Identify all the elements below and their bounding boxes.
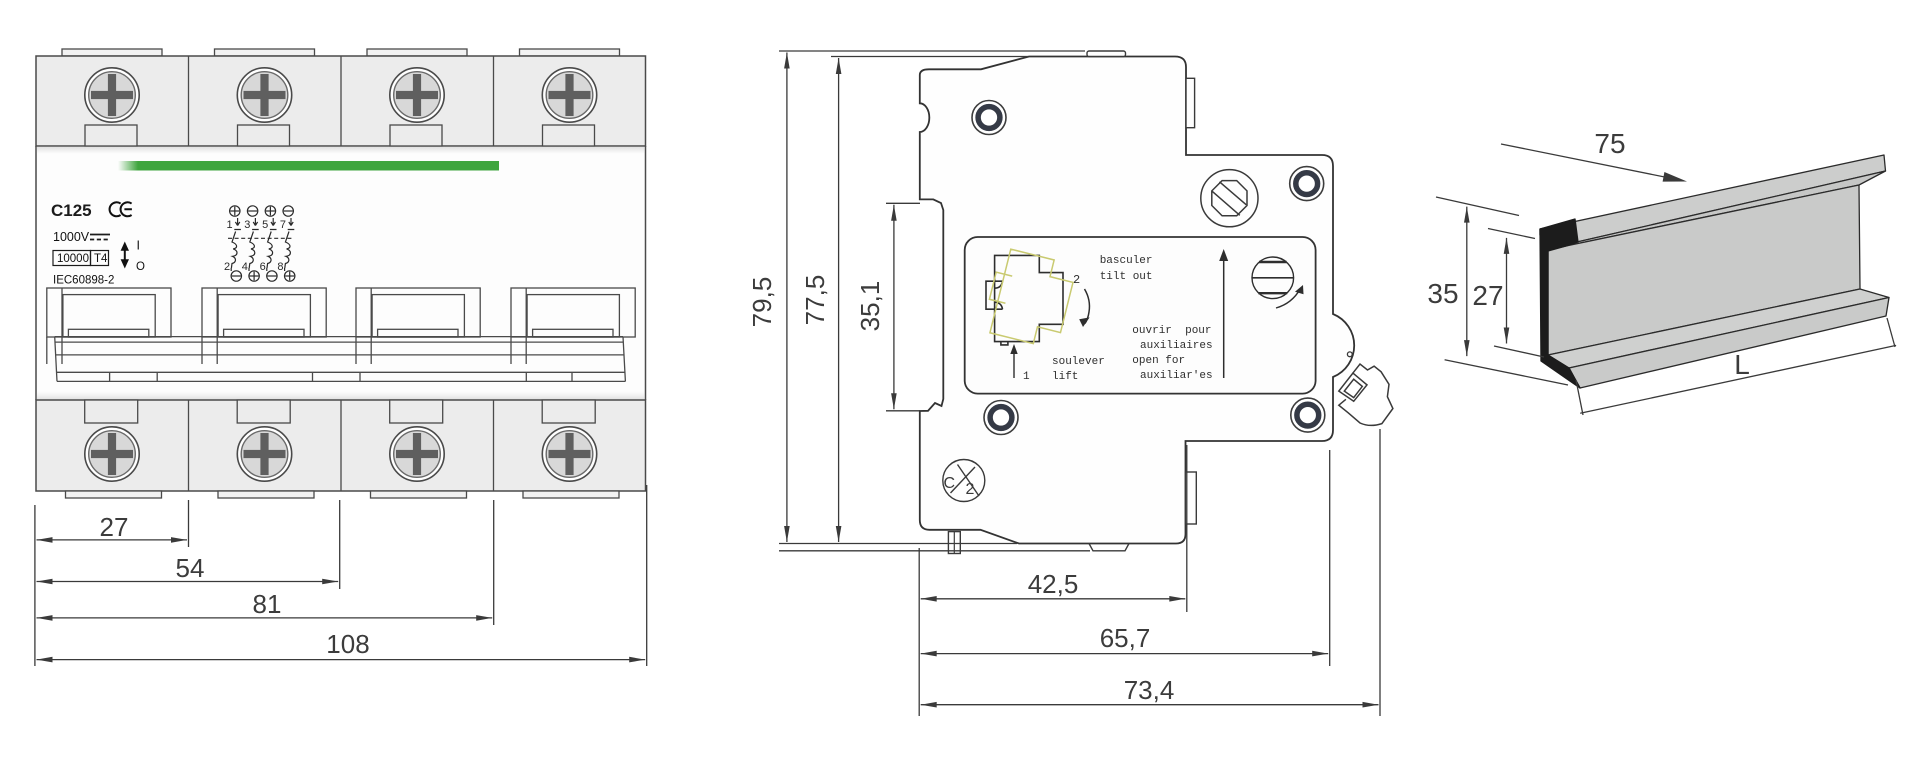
svg-text:108: 108 <box>326 629 369 659</box>
svg-text:5: 5 <box>262 219 268 231</box>
svg-text:basculer: basculer <box>1100 255 1153 267</box>
svg-text:O: O <box>136 261 145 273</box>
svg-text:35,1: 35,1 <box>855 281 885 332</box>
svg-text:IEC60898-2: IEC60898-2 <box>53 275 114 287</box>
svg-text:T4: T4 <box>94 253 108 265</box>
svg-text:10000: 10000 <box>57 253 89 265</box>
svg-text:54: 54 <box>176 553 205 583</box>
svg-text:auxiliar'es: auxiliar'es <box>1140 370 1213 382</box>
svg-text:3: 3 <box>244 219 250 231</box>
svg-text:6: 6 <box>260 261 266 273</box>
svg-text:81: 81 <box>253 589 282 619</box>
svg-text:2: 2 <box>966 481 975 498</box>
svg-text:open for: open for <box>1132 355 1185 367</box>
svg-text:ouvrir pour: ouvrir pour <box>1132 325 1211 337</box>
svg-text:C: C <box>944 475 956 492</box>
svg-text:8: 8 <box>277 261 283 273</box>
svg-text:soulever: soulever <box>1052 356 1105 368</box>
svg-text:27: 27 <box>1472 280 1503 311</box>
svg-text:27: 27 <box>100 512 129 542</box>
svg-text:1: 1 <box>227 219 233 231</box>
svg-text:C125: C125 <box>51 201 92 220</box>
svg-text:2: 2 <box>224 261 230 273</box>
svg-text:L: L <box>1734 349 1750 380</box>
svg-text:77,5: 77,5 <box>800 275 830 326</box>
svg-text:1000V: 1000V <box>53 230 90 244</box>
svg-text:I: I <box>137 239 140 253</box>
svg-text:7: 7 <box>280 219 286 231</box>
svg-text:4: 4 <box>242 261 248 273</box>
svg-text:2: 2 <box>1073 273 1080 287</box>
svg-text:1: 1 <box>1023 371 1030 383</box>
svg-text:tilt out: tilt out <box>1100 271 1153 283</box>
svg-text:42,5: 42,5 <box>1028 569 1079 599</box>
svg-text:lift: lift <box>1052 371 1078 383</box>
svg-text:75: 75 <box>1594 128 1625 159</box>
svg-text:73,4: 73,4 <box>1124 675 1175 705</box>
svg-text:65,7: 65,7 <box>1100 623 1151 653</box>
svg-text:79,5: 79,5 <box>747 277 777 328</box>
svg-text:35: 35 <box>1427 278 1458 309</box>
svg-text:auxiliaires: auxiliaires <box>1140 340 1213 352</box>
